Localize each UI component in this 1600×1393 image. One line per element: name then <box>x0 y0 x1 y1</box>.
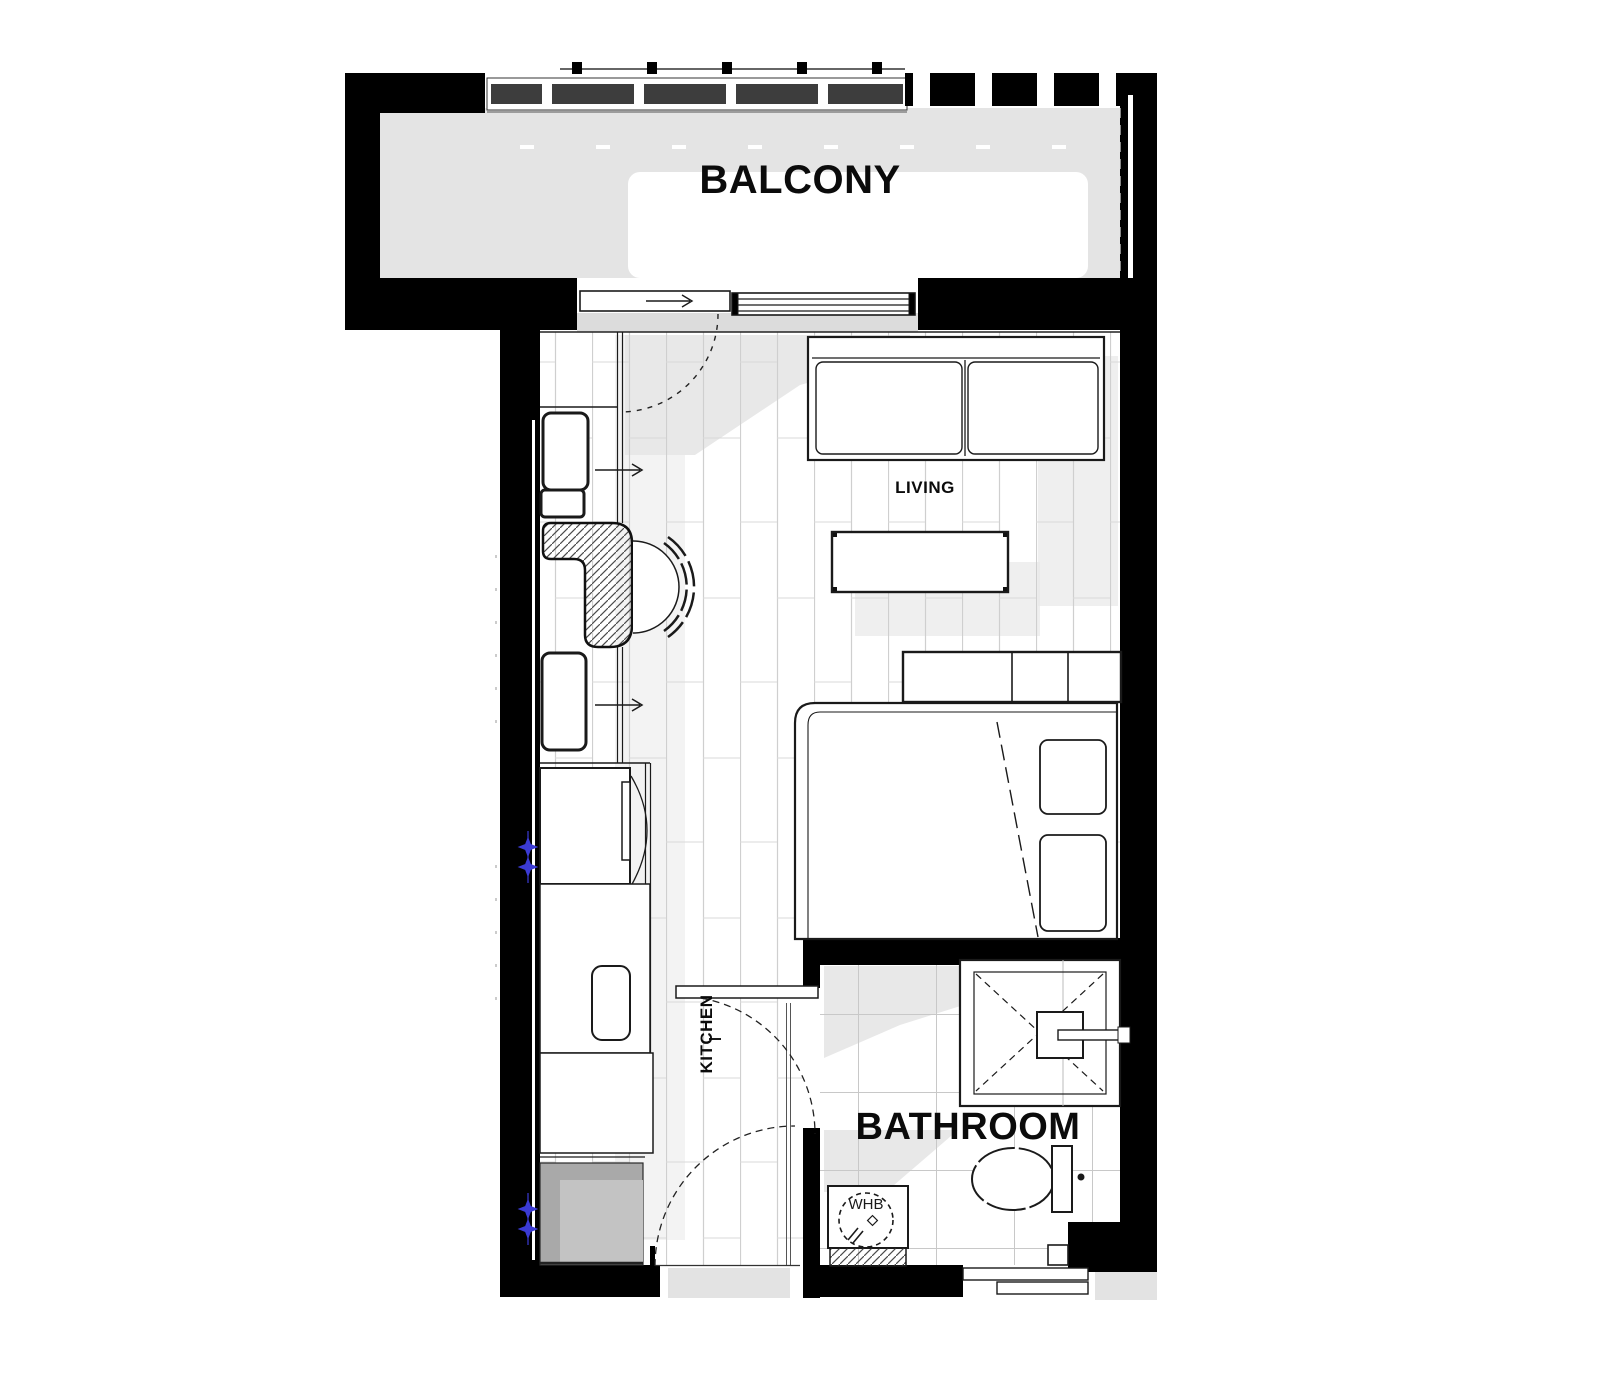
bathroom-label: BATHROOM <box>833 1106 1103 1149</box>
toilet <box>972 1146 1085 1212</box>
shower <box>960 960 1130 1106</box>
sofa-cushion <box>816 362 962 454</box>
wall-bottom-left <box>500 1265 660 1297</box>
entry-door-jamb <box>650 1246 655 1266</box>
wall-balcony-bottom-right <box>918 278 1122 330</box>
bed <box>795 703 1117 939</box>
headboard-shelf <box>903 652 1121 702</box>
sliding-door-fixed-panel <box>732 293 915 315</box>
wardrobe-drawer <box>541 490 584 517</box>
kitchen-label: KITCHEN <box>697 964 717 1104</box>
balcony-label: BALCONY <box>680 158 920 203</box>
balcony-door-sill <box>577 313 918 332</box>
privacy-screen-wall <box>905 73 1120 106</box>
oven <box>540 768 630 884</box>
pillow <box>1040 835 1106 931</box>
wall-bathroom-door-stub <box>803 963 820 988</box>
pillow <box>1040 740 1106 814</box>
toilet-button <box>1078 1174 1085 1181</box>
wardrobe-unit <box>543 413 588 490</box>
sofa-cushion <box>968 362 1098 454</box>
toilet-cistern <box>1052 1146 1072 1212</box>
floor-waste <box>1048 1245 1068 1265</box>
entry-mat <box>668 1268 790 1298</box>
wall-right <box>1120 73 1157 1240</box>
floor-plan: BALCONY LIVING KITCHEN BATHROOM WHB <box>0 0 1600 1393</box>
wardrobe-unit <box>542 653 586 750</box>
wall-bottom-bathroom <box>803 1265 963 1297</box>
bathroom-window <box>963 1268 1088 1294</box>
sofa <box>808 337 1104 460</box>
toilet-bowl <box>972 1148 1054 1210</box>
wall-balcony-bottom-left <box>345 278 577 330</box>
wall-corner-step-b <box>1090 1240 1157 1272</box>
shower-arm <box>1058 1030 1122 1040</box>
laundry-unit <box>540 1163 643 1265</box>
vanity-cabinet <box>830 1248 906 1266</box>
balcony-sliding-door <box>580 291 915 315</box>
exterior-patch <box>1095 1272 1157 1300</box>
balcony-balustrade <box>487 62 907 112</box>
coffee-table <box>832 532 1008 592</box>
living-label: LIVING <box>865 478 985 498</box>
floor-plan-drawing <box>0 0 1600 1393</box>
kitchen-sink <box>592 966 630 1040</box>
kitchen-cabinet <box>540 1053 653 1153</box>
whb-label: WHB <box>838 1196 894 1213</box>
oven-handle <box>622 782 630 860</box>
